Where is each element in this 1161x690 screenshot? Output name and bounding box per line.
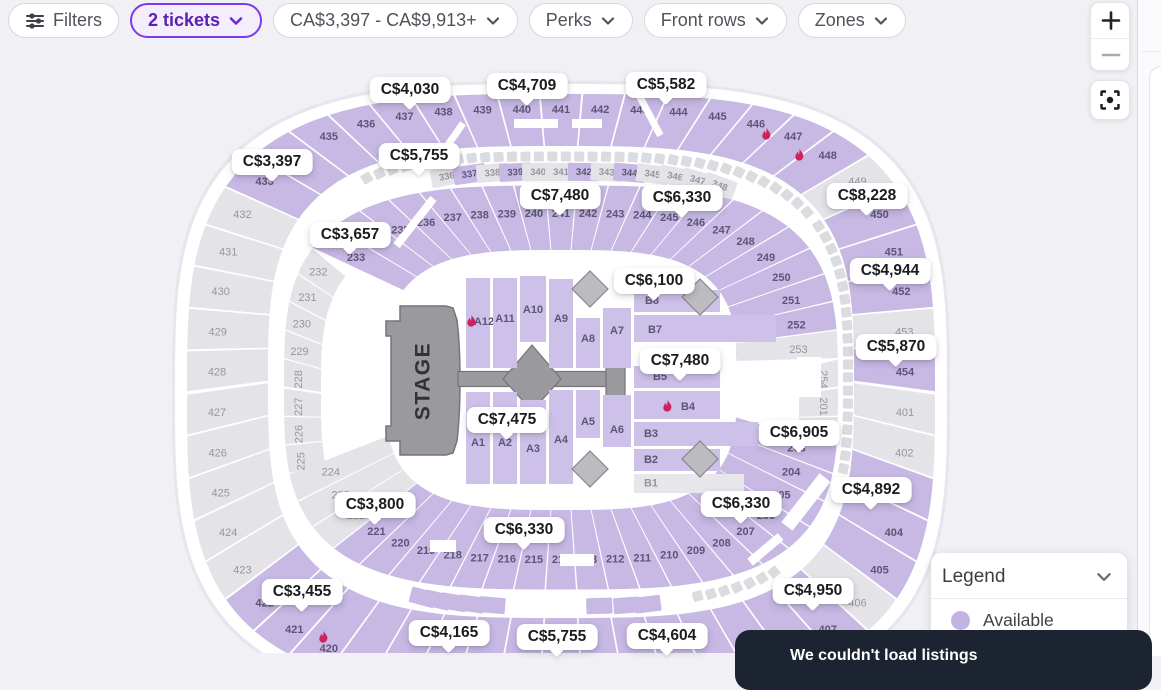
svg-text:A1: A1 bbox=[471, 437, 485, 449]
svg-text:B1: B1 bbox=[644, 477, 658, 489]
svg-text:440: 440 bbox=[513, 104, 531, 116]
svg-text:420: 420 bbox=[320, 643, 338, 653]
svg-text:445: 445 bbox=[708, 111, 726, 123]
svg-text:211: 211 bbox=[633, 552, 651, 564]
svg-text:340: 340 bbox=[530, 167, 546, 178]
svg-text:252: 252 bbox=[787, 319, 805, 331]
svg-text:401: 401 bbox=[896, 407, 914, 419]
svg-text:A3: A3 bbox=[526, 443, 540, 455]
svg-text:448: 448 bbox=[819, 150, 837, 162]
svg-text:454: 454 bbox=[896, 367, 915, 379]
svg-text:427: 427 bbox=[208, 407, 226, 419]
svg-text:450: 450 bbox=[870, 209, 888, 221]
svg-text:444: 444 bbox=[669, 107, 688, 119]
svg-text:248: 248 bbox=[736, 236, 754, 248]
svg-text:425: 425 bbox=[212, 488, 230, 500]
svg-text:A7: A7 bbox=[610, 325, 624, 337]
svg-text:247: 247 bbox=[712, 224, 730, 236]
svg-text:204: 204 bbox=[782, 467, 801, 479]
svg-text:249: 249 bbox=[757, 252, 775, 264]
svg-text:424: 424 bbox=[219, 527, 237, 539]
svg-text:207: 207 bbox=[736, 526, 754, 538]
svg-text:201: 201 bbox=[817, 398, 829, 416]
svg-text:246: 246 bbox=[687, 217, 705, 229]
svg-text:337: 337 bbox=[461, 168, 478, 181]
svg-text:239: 239 bbox=[498, 208, 516, 220]
svg-text:A6: A6 bbox=[610, 424, 624, 436]
svg-text:341: 341 bbox=[553, 167, 570, 178]
svg-text:227: 227 bbox=[293, 398, 305, 416]
svg-text:251: 251 bbox=[782, 295, 800, 307]
svg-text:404: 404 bbox=[885, 527, 904, 539]
svg-text:339: 339 bbox=[507, 167, 523, 179]
svg-text:447: 447 bbox=[784, 131, 802, 143]
svg-text:210: 210 bbox=[660, 550, 678, 562]
svg-text:343: 343 bbox=[598, 167, 614, 179]
svg-text:237: 237 bbox=[444, 212, 462, 224]
svg-text:A9: A9 bbox=[554, 313, 568, 325]
svg-text:B7: B7 bbox=[648, 324, 662, 336]
svg-text:225: 225 bbox=[296, 452, 308, 470]
svg-text:224: 224 bbox=[322, 467, 340, 479]
svg-text:A11: A11 bbox=[495, 313, 515, 325]
svg-text:212: 212 bbox=[606, 554, 624, 566]
svg-text:428: 428 bbox=[208, 367, 226, 379]
svg-text:338: 338 bbox=[484, 167, 501, 179]
svg-text:217: 217 bbox=[471, 552, 489, 564]
svg-text:A5: A5 bbox=[581, 416, 595, 428]
svg-text:438: 438 bbox=[434, 107, 452, 119]
svg-text:426: 426 bbox=[209, 447, 227, 459]
svg-text:242: 242 bbox=[579, 208, 597, 220]
svg-text:439: 439 bbox=[473, 105, 491, 117]
svg-text:436: 436 bbox=[357, 119, 375, 131]
svg-text:430: 430 bbox=[212, 286, 230, 298]
svg-text:437: 437 bbox=[395, 111, 413, 123]
svg-text:405: 405 bbox=[870, 565, 888, 577]
svg-text:230: 230 bbox=[293, 319, 311, 331]
svg-text:250: 250 bbox=[772, 272, 790, 284]
svg-text:245: 245 bbox=[660, 212, 678, 224]
svg-text:442: 442 bbox=[591, 104, 609, 116]
svg-text:429: 429 bbox=[209, 326, 227, 338]
svg-text:A8: A8 bbox=[581, 333, 595, 345]
svg-text:STAGE: STAGE bbox=[412, 342, 435, 420]
svg-text:231: 231 bbox=[298, 292, 316, 304]
svg-text:232: 232 bbox=[309, 266, 327, 278]
svg-text:402: 402 bbox=[895, 447, 913, 459]
svg-text:435: 435 bbox=[320, 131, 338, 143]
svg-text:431: 431 bbox=[219, 247, 237, 259]
svg-text:220: 220 bbox=[391, 537, 409, 549]
svg-text:240: 240 bbox=[525, 208, 543, 220]
svg-text:226: 226 bbox=[293, 425, 305, 443]
svg-text:421: 421 bbox=[285, 624, 303, 636]
svg-text:451: 451 bbox=[885, 247, 903, 259]
svg-text:432: 432 bbox=[233, 209, 251, 221]
svg-text:208: 208 bbox=[712, 537, 730, 549]
svg-text:253: 253 bbox=[789, 344, 807, 356]
svg-text:209: 209 bbox=[687, 545, 705, 557]
svg-text:243: 243 bbox=[606, 208, 624, 220]
svg-text:221: 221 bbox=[367, 526, 385, 538]
svg-text:A10: A10 bbox=[523, 304, 543, 316]
svg-text:446: 446 bbox=[747, 119, 765, 131]
svg-text:452: 452 bbox=[892, 286, 910, 298]
svg-text:B4: B4 bbox=[681, 401, 696, 413]
svg-text:B3: B3 bbox=[644, 428, 658, 440]
svg-text:A12: A12 bbox=[474, 316, 494, 328]
svg-text:229: 229 bbox=[290, 346, 308, 358]
svg-text:423: 423 bbox=[233, 565, 251, 577]
svg-text:238: 238 bbox=[471, 210, 489, 222]
svg-text:215: 215 bbox=[525, 554, 543, 566]
svg-text:441: 441 bbox=[552, 104, 570, 116]
svg-text:A4: A4 bbox=[554, 434, 569, 446]
svg-text:244: 244 bbox=[633, 210, 652, 222]
svg-text:B2: B2 bbox=[644, 454, 658, 466]
svg-text:216: 216 bbox=[498, 554, 516, 566]
svg-text:342: 342 bbox=[576, 167, 592, 178]
svg-text:228: 228 bbox=[293, 370, 305, 388]
